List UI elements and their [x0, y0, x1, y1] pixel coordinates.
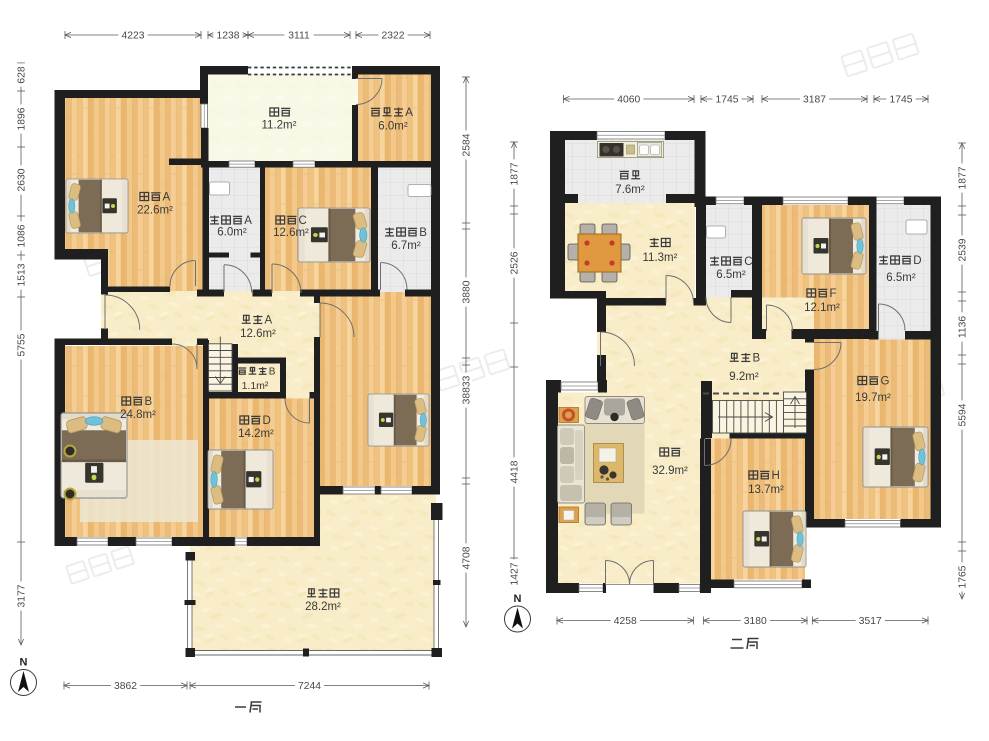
svg-text:1238: 1238 — [217, 31, 240, 42]
svg-text:6.5m²: 6.5m² — [886, 272, 916, 284]
svg-text:A: A — [244, 215, 252, 227]
svg-text:12.6m²: 12.6m² — [273, 227, 309, 239]
svg-text:1427: 1427 — [510, 562, 521, 585]
svg-text:14.2m²: 14.2m² — [238, 428, 274, 440]
svg-text:4708: 4708 — [462, 546, 473, 569]
svg-text:3180: 3180 — [744, 616, 767, 627]
svg-text:5755: 5755 — [17, 333, 28, 356]
svg-text:11.3m²: 11.3m² — [643, 252, 678, 264]
svg-text:4418: 4418 — [510, 460, 521, 483]
svg-text:12.6m²: 12.6m² — [240, 328, 276, 340]
svg-text:3880: 3880 — [462, 280, 473, 303]
svg-text:1877: 1877 — [510, 162, 521, 185]
svg-text:A: A — [265, 315, 273, 327]
svg-text:11.2m²: 11.2m² — [262, 120, 297, 132]
svg-text:3187: 3187 — [803, 95, 826, 106]
svg-text:N: N — [514, 593, 522, 605]
svg-text:F: F — [830, 288, 837, 300]
svg-text:1136: 1136 — [958, 316, 969, 338]
svg-text:B: B — [269, 367, 276, 378]
svg-text:3862: 3862 — [114, 681, 137, 692]
svg-text:19.7m²: 19.7m² — [855, 392, 891, 404]
svg-text:H: H — [772, 470, 780, 482]
svg-text:5594: 5594 — [958, 403, 969, 426]
svg-text:6.5m²: 6.5m² — [716, 269, 746, 281]
svg-text:A: A — [163, 192, 171, 204]
svg-text:B: B — [753, 353, 761, 365]
svg-text:D: D — [263, 415, 271, 427]
svg-text:C: C — [744, 256, 752, 268]
svg-text:B: B — [145, 396, 153, 408]
svg-text:1877: 1877 — [958, 166, 969, 189]
svg-text:2539: 2539 — [958, 238, 969, 261]
svg-text:C: C — [299, 215, 307, 227]
svg-text:A: A — [405, 107, 413, 119]
svg-text:6.7m²: 6.7m² — [391, 240, 421, 252]
svg-text:1513: 1513 — [17, 263, 28, 286]
svg-text:2526: 2526 — [510, 251, 521, 274]
svg-text:4223: 4223 — [122, 31, 145, 42]
svg-text:1086: 1086 — [17, 224, 28, 247]
svg-text:N: N — [20, 657, 28, 669]
svg-text:G: G — [881, 376, 890, 388]
svg-text:4060: 4060 — [617, 95, 640, 106]
svg-text:2322: 2322 — [382, 31, 405, 42]
svg-text:2584: 2584 — [462, 133, 473, 156]
svg-text:2630: 2630 — [17, 168, 28, 191]
svg-text:28.2m²: 28.2m² — [305, 601, 341, 613]
svg-text:6.0m²: 6.0m² — [378, 121, 408, 133]
svg-text:24.8m²: 24.8m² — [120, 409, 156, 421]
svg-text:1745: 1745 — [890, 95, 913, 106]
svg-text:32.9m²: 32.9m² — [652, 465, 688, 477]
svg-text:38833: 38833 — [462, 375, 473, 404]
svg-text:22.6m²: 22.6m² — [137, 205, 173, 217]
svg-text:9.2m²: 9.2m² — [729, 371, 759, 383]
svg-text:6.0m²: 6.0m² — [217, 227, 247, 239]
svg-text:13.7m²: 13.7m² — [748, 484, 784, 496]
svg-text:1765: 1765 — [958, 565, 969, 588]
svg-text:7244: 7244 — [298, 681, 321, 692]
svg-text:12.1m²: 12.1m² — [804, 302, 840, 314]
svg-text:1745: 1745 — [716, 95, 739, 106]
svg-text:1896: 1896 — [17, 107, 28, 130]
svg-text:B: B — [419, 227, 427, 239]
svg-text:3517: 3517 — [859, 616, 882, 627]
svg-text:4258: 4258 — [614, 616, 637, 627]
svg-text:1.1m²: 1.1m² — [242, 380, 269, 392]
svg-text:3111: 3111 — [288, 31, 310, 42]
svg-text:3177: 3177 — [17, 584, 28, 607]
svg-text:7.6m²: 7.6m² — [615, 184, 645, 196]
svg-text:628: 628 — [17, 66, 28, 83]
svg-text:D: D — [913, 255, 921, 267]
